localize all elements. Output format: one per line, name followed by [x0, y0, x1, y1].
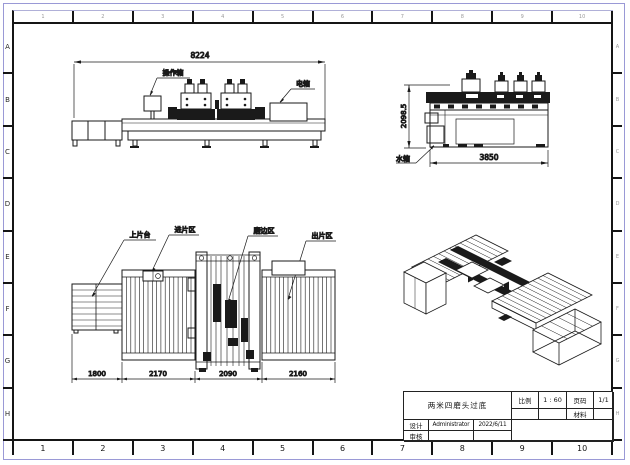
zone-row: D: [3, 179, 12, 231]
zone-band-top: 1 2 3 4 5 6 7 8 9 10: [12, 10, 613, 22]
zone-col: 1: [14, 441, 74, 455]
zone-band-bottom: 1 2 3 4 5 6 7 8 9 10: [12, 441, 613, 455]
page-value: 1/1: [594, 392, 614, 409]
review-label: 审核: [404, 431, 429, 442]
zone-row: F: [3, 284, 12, 336]
reviewer-value: [429, 431, 474, 442]
zone-row: C: [3, 127, 12, 179]
drawing-sheet: 1 2 3 4 5 6 7 8 9 10 1 2 3 4 5 6 7 8 9 1…: [0, 0, 630, 465]
zone-band-left: A B C D E F G H: [3, 22, 12, 441]
design-date: 2022/6/11: [474, 420, 512, 431]
zone-row: B: [3, 74, 12, 126]
zone-row: E: [3, 232, 12, 284]
zone-row: H: [613, 389, 622, 441]
zone-col: 1: [14, 11, 74, 22]
zone-col: 9: [493, 11, 553, 22]
design-label: 设计: [404, 420, 429, 431]
zone-col: 10: [553, 441, 613, 455]
zone-col: 5: [254, 441, 314, 455]
blank-cell: [539, 409, 567, 420]
zone-row: H: [3, 389, 12, 441]
zone-col: 8: [433, 441, 493, 455]
zone-row: F: [613, 284, 622, 336]
zone-band-right: A B C D E F G H: [613, 22, 622, 441]
zone-row: D: [613, 179, 622, 231]
zone-col: 3: [134, 441, 194, 455]
zone-col: 6: [314, 11, 374, 22]
zone-col: 4: [194, 441, 254, 455]
material-label: 材料: [567, 409, 594, 420]
zone-col: 8: [433, 11, 493, 22]
zone-col: 3: [134, 11, 194, 22]
designer-value: Administrator: [429, 420, 474, 431]
zone-col: 5: [254, 11, 314, 22]
blank-cell: [474, 431, 512, 442]
scale-value: 1 : 60: [539, 392, 567, 409]
title-block: 两米四磨头过底 比例 1 : 60 页码 1/1 材料 设计 Administr…: [403, 391, 613, 441]
zone-col: 7: [373, 441, 433, 455]
page-label: 页码: [567, 392, 594, 409]
zone-row: G: [3, 336, 12, 388]
zone-col: 2: [74, 441, 134, 455]
zone-row: B: [613, 74, 622, 126]
blank-cell: [512, 409, 539, 420]
zone-row: G: [613, 336, 622, 388]
drawing-title: 两米四磨头过底: [404, 392, 512, 420]
zone-col: 2: [74, 11, 134, 22]
zone-col: 10: [553, 11, 613, 22]
zone-row: E: [613, 232, 622, 284]
zone-col: 7: [373, 11, 433, 22]
zone-col: 4: [194, 11, 254, 22]
zone-col: 9: [493, 441, 553, 455]
blank-cell: [512, 420, 614, 442]
zone-col: 6: [314, 441, 374, 455]
material-value: [594, 409, 614, 420]
zone-row: C: [613, 127, 622, 179]
scale-label: 比例: [512, 392, 539, 409]
zone-row: A: [613, 22, 622, 74]
sheet-inner-frame: [12, 22, 613, 441]
zone-row: A: [3, 22, 12, 74]
